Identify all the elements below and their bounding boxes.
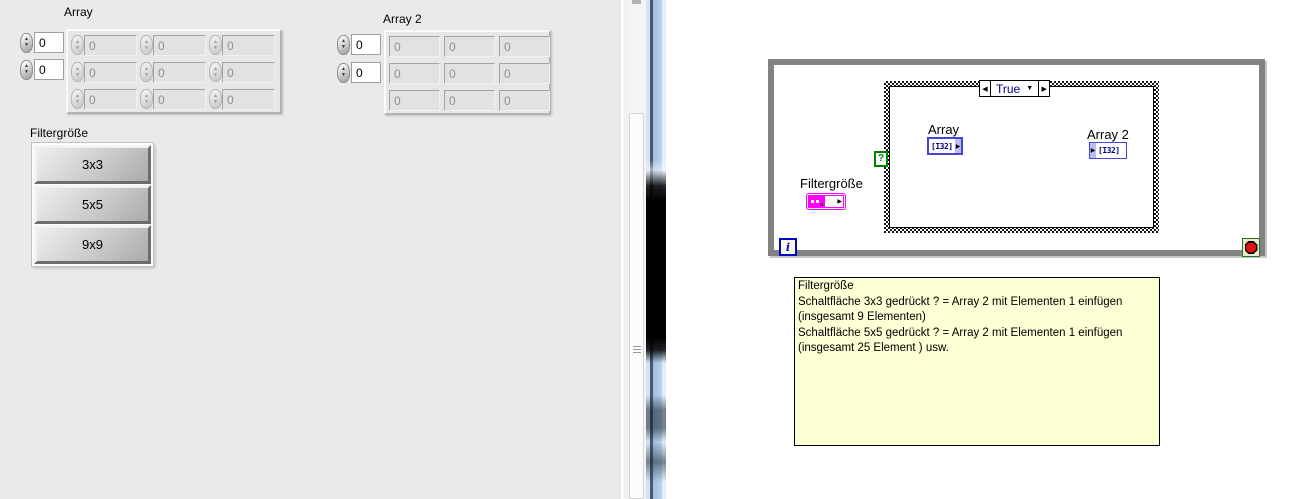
filter-cluster-terminal[interactable]: ▶ [806,193,846,210]
stop-sign-icon [1245,241,1258,254]
array-cell: ▲▼0 [140,34,206,56]
array-index-field[interactable]: 0 [34,32,64,53]
cell-spinner: ▲▼ [209,35,222,55]
array-cell: ▲▼0 [209,34,275,56]
spinner-down-icon: ▼ [213,73,218,78]
array2-index-field[interactable]: 0 [351,62,381,83]
filter-button-3x3[interactable]: 3x3 [34,145,151,184]
comment-box: Filtergröße Schaltfläche 3x3 gedrückt ? … [794,277,1160,446]
filter-size-buttons: 3x3 5x5 9x9 [32,143,153,266]
array-cell: ▲▼0 [140,61,206,83]
filter-cluster-frame: ▶ [808,195,844,208]
spinner-up-icon: ▲ [144,40,149,45]
array-index-row-0: ▲▼ 0 [20,32,64,53]
comment-line: (insgesamt 9 Elementen) [798,310,1156,326]
spinner-down-icon: ▼ [213,100,218,105]
array2-cell-field: 0 [444,36,495,57]
spinner-up-icon: ▲ [75,67,80,72]
array-index-row-1: ▲▼ 0 [20,59,64,80]
array2-cell: 0 [499,62,550,84]
index-spinner[interactable]: ▲▼ [337,63,350,83]
cell-spinner: ▲▼ [140,62,153,82]
spinner-up-icon: ▲ [213,94,218,99]
cell-spinner: ▲▼ [209,62,222,82]
spinner-down-icon: ▼ [213,46,218,51]
array2-cell: 0 [389,89,440,111]
cell-spinner: ▲▼ [140,35,153,55]
array-data-grid: ▲▼0 ▲▼0 ▲▼0 ▲▼0 ▲▼0 ▲▼0 ▲▼0 ▲▼0 ▲▼0 [66,29,282,114]
spinner-down-icon: ▼ [75,46,80,51]
spinner-down-icon[interactable]: ▼ [341,45,346,50]
array2-index-row-0: ▲▼ 0 [337,34,381,55]
spinner-up-icon: ▲ [144,67,149,72]
spinner-down-icon: ▼ [75,100,80,105]
case-dropdown-icon[interactable]: ▼ [1026,85,1033,92]
array-cell: ▲▼0 [209,61,275,83]
cell-spinner: ▲▼ [209,89,222,109]
array-cell: ▲▼0 [71,88,137,110]
array2-cell: 0 [444,35,495,57]
case-selector-value[interactable]: True [996,82,1020,96]
array-cell: ▲▼0 [71,34,137,56]
array-cell-field: 0 [84,62,137,83]
comment-line: Schaltfläche 3x3 gedrückt ? = Array 2 mi… [798,295,1156,311]
array2-terminal-label: Array 2 [1087,127,1129,142]
spinner-down-icon[interactable]: ▼ [341,73,346,78]
cell-spinner: ▲▼ [71,35,84,55]
case-selector-label[interactable]: ◀ True ▼ ▶ [979,80,1050,97]
array2-cell-field: 0 [389,63,440,84]
loop-condition-terminal[interactable] [1242,238,1260,257]
array-cell-field: 0 [222,89,275,110]
index-spinner[interactable]: ▲▼ [20,60,33,80]
window-edge-strip [646,0,666,499]
spinner-down-icon[interactable]: ▼ [24,43,29,48]
array2-cell: 0 [444,62,495,84]
edge-shadow-overlay [646,0,666,499]
case-next-icon[interactable]: ▶ [1038,81,1049,96]
filter-button-9x9[interactable]: 9x9 [34,225,151,264]
scrollbar-thumb[interactable] [629,113,644,499]
spinner-up-icon: ▲ [213,67,218,72]
spinner-down-icon: ▼ [75,73,80,78]
array-terminal[interactable]: [I32] ▶ [927,137,963,155]
comment-line: Filtergröße [798,279,1156,295]
spinner-down-icon: ▼ [144,46,149,51]
array-cell: ▲▼0 [140,88,206,110]
cluster-glyph-icon [809,196,825,207]
array-cell: ▲▼0 [71,61,137,83]
index-spinner[interactable]: ▲▼ [20,33,33,53]
spinner-down-icon: ▼ [144,73,149,78]
array2-cell-field: 0 [499,36,550,57]
array-terminal-type: [I32] [929,139,955,153]
case-previous-icon[interactable]: ◀ [980,81,991,96]
index-spinner[interactable]: ▲▼ [337,35,350,55]
scrollbar-top-stub [632,0,641,4]
array2-cell: 0 [389,62,440,84]
scrollbar-grip-icon[interactable] [633,346,641,355]
array2-index-row-1: ▲▼ 0 [337,62,381,83]
array-cell-field: 0 [84,35,137,56]
array2-cell-field: 0 [499,63,550,84]
array2-terminal-type: [I32] [1096,143,1122,158]
vertical-scrollbar[interactable] [628,0,646,499]
array-terminal-label: Array [928,122,959,137]
array2-data-grid: 0 0 0 0 0 0 0 0 0 [384,30,551,115]
array-cell-field: 0 [222,35,275,56]
array-index-field[interactable]: 0 [34,59,64,80]
labview-window: Array ▲▼ 0 ▲▼ 0 ▲▼0 ▲▼0 ▲▼0 ▲▼0 ▲▼0 ▲▼0 … [0,0,1292,499]
array2-index-field[interactable]: 0 [351,34,381,55]
array2-cell: 0 [499,89,550,111]
array-cell-field: 0 [84,89,137,110]
array2-cell-field: 0 [389,36,440,57]
array-cell-field: 0 [153,35,206,56]
spinner-down-icon: ▼ [144,100,149,105]
array2-cell-field: 0 [444,90,495,111]
comment-line: Schaltfläche 5x5 gedrückt ? = Array 2 mi… [798,326,1156,342]
array2-cell-field: 0 [444,63,495,84]
cell-spinner: ▲▼ [71,89,84,109]
array-cell-field: 0 [222,62,275,83]
spinner-up-icon: ▲ [75,40,80,45]
terminal-output-arrow-icon: ▶ [955,139,961,153]
array2-cell: 0 [444,89,495,111]
filter-button-5x5[interactable]: 5x5 [34,185,151,224]
cell-spinner: ▲▼ [140,89,153,109]
spinner-down-icon[interactable]: ▼ [24,70,29,75]
array2-cell-field: 0 [389,90,440,111]
array-cell-field: 0 [153,89,206,110]
cell-spinner: ▲▼ [71,62,84,82]
array-cell-field: 0 [153,62,206,83]
array2-cell: 0 [499,35,550,57]
spinner-up-icon: ▲ [75,94,80,99]
filter-size-label: Filtergröße [30,126,88,140]
array2-cell: 0 [389,35,440,57]
array2-terminal[interactable]: ▶ [I32] [1089,142,1127,159]
case-selector-terminal[interactable]: ? [874,151,888,167]
comment-line: (insgesamt 25 Element ) usw. [798,341,1156,357]
spinner-up-icon: ▲ [213,40,218,45]
front-panel: Array ▲▼ 0 ▲▼ 0 ▲▼0 ▲▼0 ▲▼0 ▲▼0 ▲▼0 ▲▼0 … [0,0,621,499]
spinner-up-icon: ▲ [144,94,149,99]
case-selector-value-wrap[interactable]: True ▼ [991,81,1038,96]
array-control-label: Array [64,5,93,19]
array2-cell-field: 0 [499,90,550,111]
array2-indicator-label: Array 2 [383,12,422,26]
array-cell: ▲▼0 [209,88,275,110]
filter-terminal-label: Filtergröße [800,176,863,191]
iteration-terminal[interactable]: i [779,238,797,256]
terminal-output-arrow-icon: ▶ [837,196,843,207]
